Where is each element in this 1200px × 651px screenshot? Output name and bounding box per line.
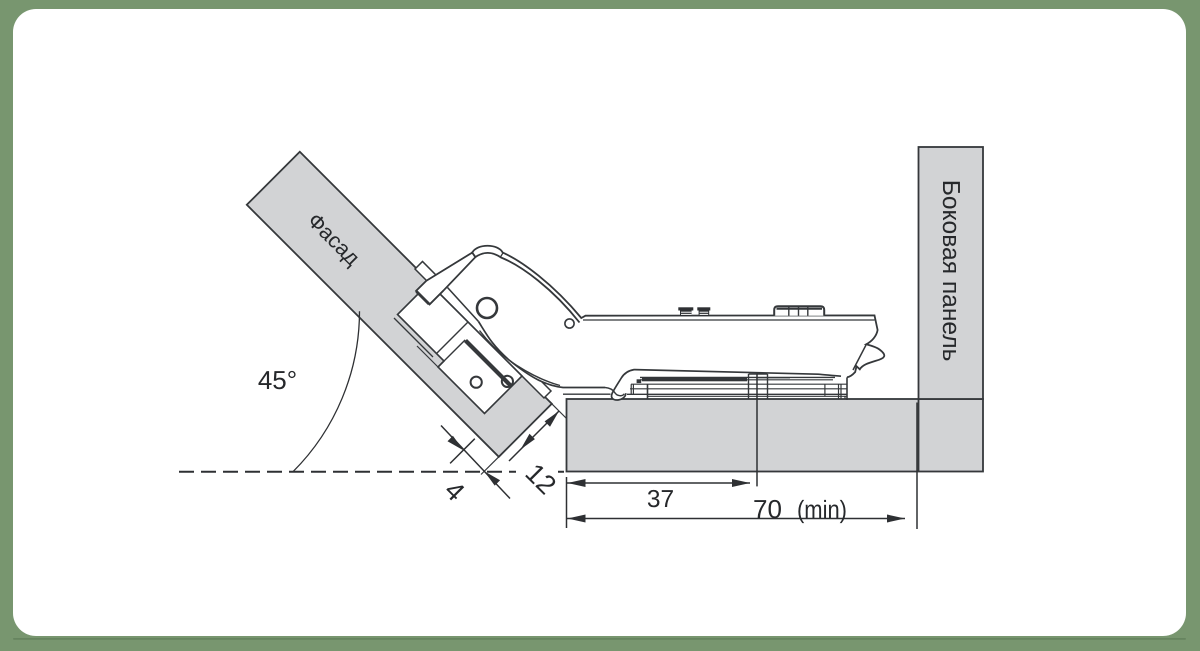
svg-text:37: 37 (647, 486, 674, 513)
svg-text:70(min): 70(min) (753, 494, 847, 524)
svg-text:Боковая панель: Боковая панель (937, 180, 964, 362)
svg-text:45°: 45° (258, 365, 297, 395)
